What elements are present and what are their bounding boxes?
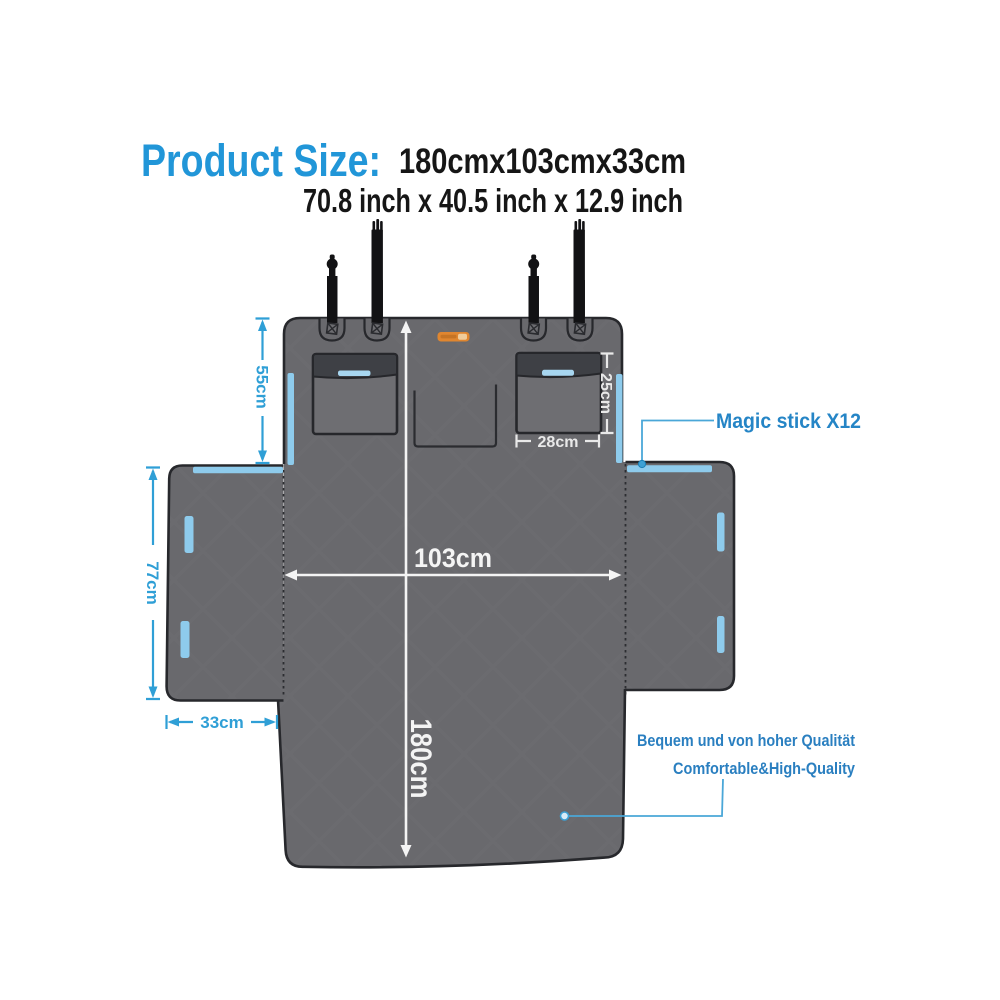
svg-text:180cm: 180cm	[404, 719, 437, 799]
svg-text:Comfortable&High-Quality: Comfortable&High-Quality	[673, 759, 855, 778]
svg-text:55cm: 55cm	[253, 365, 272, 408]
svg-text:Product Size:: Product Size:	[141, 135, 381, 186]
svg-text:25cm: 25cm	[597, 373, 614, 414]
svg-text:180cmx103cmx33cm: 180cmx103cmx33cm	[399, 142, 686, 181]
svg-text:33cm: 33cm	[200, 713, 243, 732]
svg-text:Bequem und von hoher Qualität: Bequem und von hoher Qualität	[637, 731, 855, 750]
svg-text:28cm: 28cm	[538, 434, 579, 451]
svg-text:Magic stick X12: Magic stick X12	[716, 410, 861, 433]
svg-text:70.8 inch x 40.5 inch x 12.9 i: 70.8 inch x 40.5 inch x 12.9 inch	[303, 182, 683, 219]
svg-text:77cm: 77cm	[143, 561, 162, 604]
svg-text:103cm: 103cm	[414, 543, 492, 573]
